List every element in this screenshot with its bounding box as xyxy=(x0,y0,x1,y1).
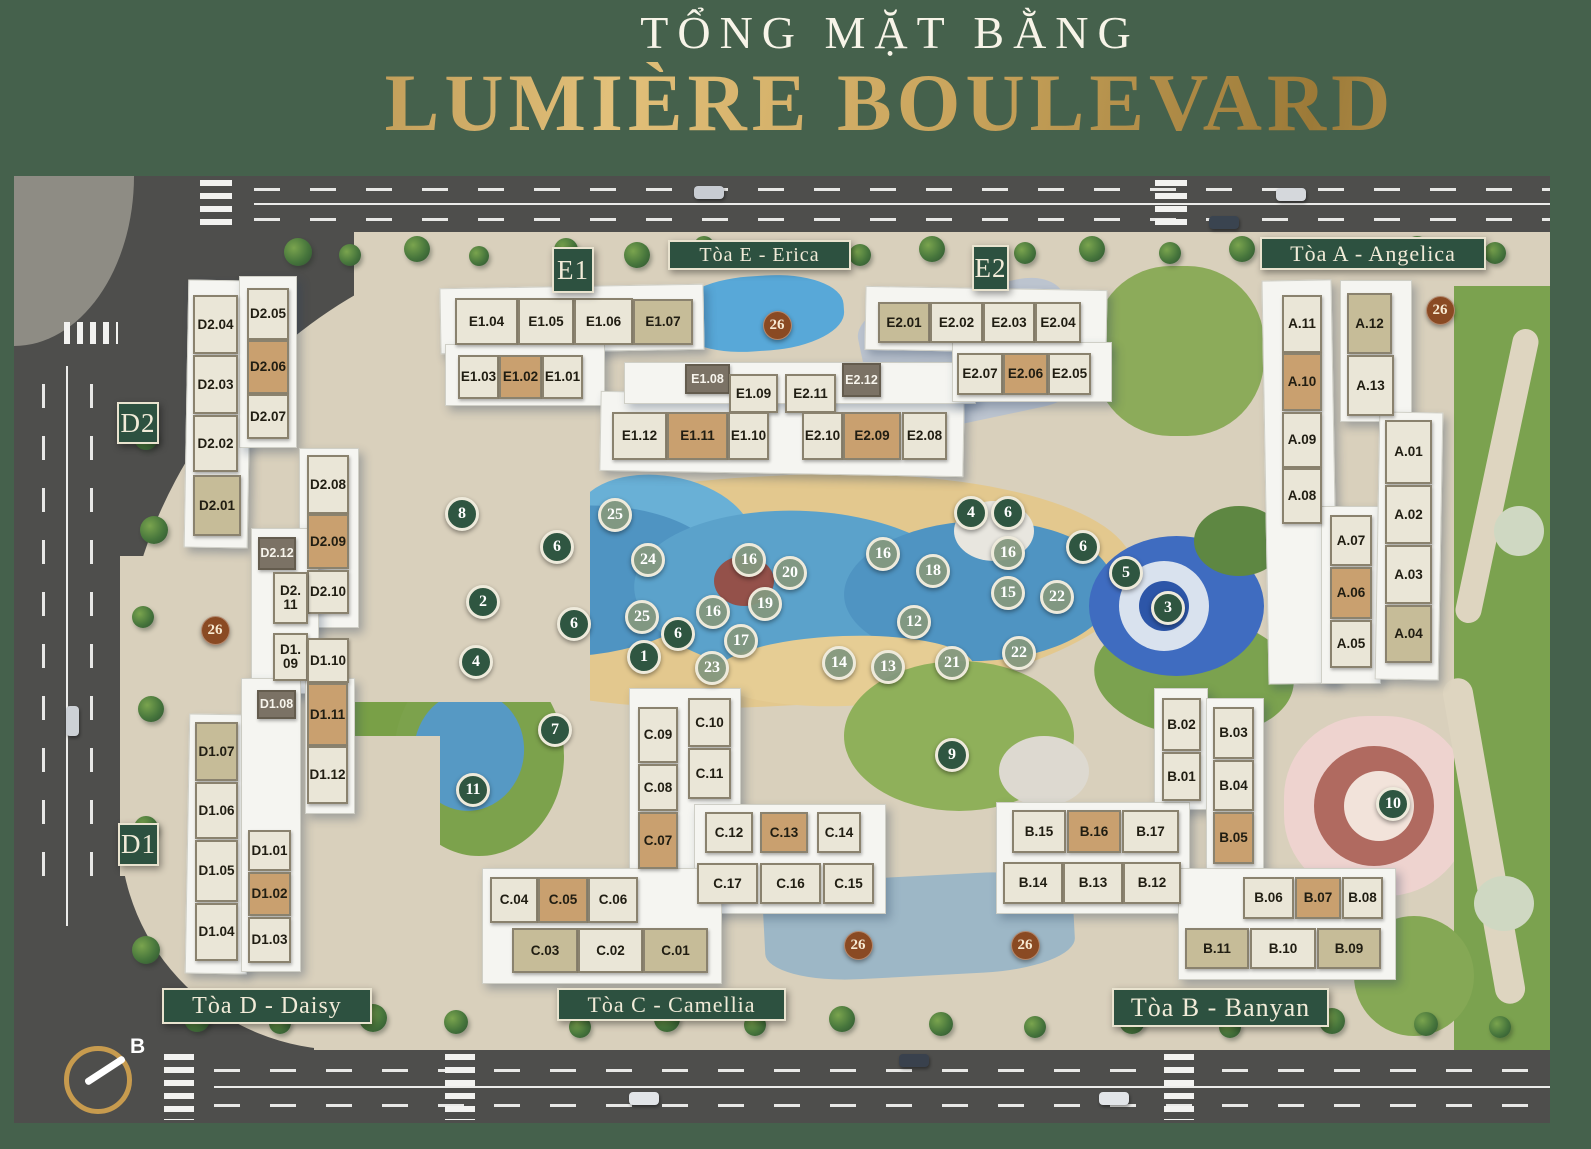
amenity-marker-25: 25 xyxy=(598,498,632,532)
unit-e2-02: E2.02 xyxy=(930,302,983,343)
unit-b-16: B.16 xyxy=(1067,810,1121,853)
palm-tree-icon xyxy=(624,242,650,268)
unit-e2-01: E2.01 xyxy=(878,302,930,343)
page-subtitle: TỔNG MẶT BẰNG xyxy=(190,4,1590,62)
unit-d1-05: D1.05 xyxy=(195,840,238,902)
unit-b-05: B.05 xyxy=(1213,812,1254,864)
amenity-marker-1: 1 xyxy=(627,640,661,674)
unit-e2-03: E2.03 xyxy=(983,302,1035,343)
palm-tree-icon xyxy=(1159,242,1181,264)
lane-marking xyxy=(254,218,1550,221)
amenity-marker-3: 3 xyxy=(1151,591,1185,625)
unit-e1-04: E1.04 xyxy=(455,298,518,345)
unit-c-07: C.07 xyxy=(638,812,678,869)
car-icon xyxy=(1099,1092,1129,1105)
unit-a-13: A.13 xyxy=(1347,355,1394,416)
unit-d2-07: D2.07 xyxy=(247,394,289,439)
unit-b-04: B.04 xyxy=(1213,760,1254,811)
page: { "title":{"subtitle":"TỔNG MẶT BẰNG","m… xyxy=(0,0,1591,1149)
unit-c-14: C.14 xyxy=(817,812,861,853)
lane-marking xyxy=(254,188,1550,191)
banner-toa-b: Tòa B - Banyan xyxy=(1112,988,1329,1027)
unit-e2-12: E2.12 xyxy=(842,363,881,397)
unit-d2-08: D2.08 xyxy=(307,455,349,514)
lane-marking xyxy=(214,1069,1550,1072)
amenity-marker-6: 6 xyxy=(1066,530,1100,564)
lane-marking xyxy=(66,366,68,926)
unit-e2-09: E2.09 xyxy=(843,412,901,460)
palm-tree-icon xyxy=(444,1010,468,1034)
unit-e1-05: E1.05 xyxy=(518,298,574,345)
palm-tree-icon xyxy=(339,244,361,266)
palm-tree-icon xyxy=(132,606,154,628)
unit-b-14: B.14 xyxy=(1003,862,1063,904)
unit-e1-12: E1.12 xyxy=(612,412,667,460)
unit-c-06: C.06 xyxy=(588,877,638,923)
unit-d2-04: D2.04 xyxy=(193,295,238,354)
unit-c-17: C.17 xyxy=(697,863,758,904)
palm-tree-icon xyxy=(929,1012,953,1036)
amenity-marker-10: 10 xyxy=(1376,787,1410,821)
unit-d1-10: D1.10 xyxy=(307,638,349,683)
unit-c-09: C.09 xyxy=(638,707,678,763)
car-icon xyxy=(1276,188,1306,201)
amenity-marker-21: 21 xyxy=(935,646,969,680)
block-label-d1: D1 xyxy=(118,823,159,866)
landscape-blob xyxy=(1474,876,1534,931)
unit-e2-11: E2.11 xyxy=(785,374,836,413)
amenity-marker-26: 26 xyxy=(201,616,230,645)
amenity-marker-25: 25 xyxy=(625,600,659,634)
unit-e2-07: E2.07 xyxy=(957,353,1003,395)
unit-e1-07: E1.07 xyxy=(633,299,693,345)
unit-d1-03: D1.03 xyxy=(248,917,291,963)
car-icon xyxy=(1209,216,1239,229)
lane-marking xyxy=(214,1104,1550,1107)
crosswalk xyxy=(1164,1054,1194,1120)
unit-d1-11: D1.11 xyxy=(307,683,348,746)
crosswalk xyxy=(64,322,118,344)
unit-d1-02: D1.02 xyxy=(248,872,291,916)
unit-b-08: B.08 xyxy=(1342,877,1383,919)
unit-a-03: A.03 xyxy=(1385,545,1432,604)
palm-tree-icon xyxy=(404,236,430,262)
unit-d1-01: D1.01 xyxy=(248,830,291,871)
car-icon xyxy=(899,1054,929,1067)
car-icon xyxy=(66,706,79,736)
banner-toa-d: Tòa D - Daisy xyxy=(162,988,372,1024)
lane-marking xyxy=(214,1086,1550,1088)
unit-e1-11: E1.11 xyxy=(667,412,728,460)
amenity-marker-16: 16 xyxy=(866,537,900,571)
amenity-marker-6: 6 xyxy=(557,607,591,641)
header: TỔNG MẶT BẰNG LUMIÈRE BOULEVARD xyxy=(190,4,1590,144)
palm-tree-icon xyxy=(132,936,160,964)
unit-e2-04: E2.04 xyxy=(1035,302,1081,343)
amenity-marker-8: 8 xyxy=(445,497,479,531)
compass-label: B xyxy=(130,1035,145,1059)
unit-c-08: C.08 xyxy=(638,764,678,811)
unit-c-15: C.15 xyxy=(823,863,874,904)
unit-d2-10: D2.10 xyxy=(307,570,349,614)
unit-b-12: B.12 xyxy=(1123,862,1181,904)
unit-b-01: B.01 xyxy=(1162,752,1201,801)
unit-a-06: A.06 xyxy=(1330,567,1372,619)
palm-tree-icon xyxy=(849,244,871,266)
palm-tree-icon xyxy=(919,236,945,262)
unit-a-01: A.01 xyxy=(1385,420,1432,484)
amenity-marker-16: 16 xyxy=(732,543,766,577)
unit-a-04: A.04 xyxy=(1385,605,1432,663)
amenity-marker-20: 20 xyxy=(773,556,807,590)
amenity-marker-22: 22 xyxy=(1002,636,1036,670)
unit-d1-04: D1.04 xyxy=(195,903,238,961)
unit-e2-10: E2.10 xyxy=(802,412,843,460)
unit-c-12: C.12 xyxy=(705,812,753,853)
unit-d2-12: D2.12 xyxy=(258,537,296,570)
unit-e2-05: E2.05 xyxy=(1048,353,1091,395)
palm-tree-icon xyxy=(140,516,168,544)
unit-d2-11: D2.11 xyxy=(273,572,308,624)
amenity-marker-18: 18 xyxy=(916,554,950,588)
unit-b-11: B.11 xyxy=(1185,928,1249,969)
unit-d1-08: D1.08 xyxy=(257,690,296,719)
lane-marking xyxy=(90,366,93,876)
palm-tree-icon xyxy=(1414,1012,1438,1036)
unit-a-10: A.10 xyxy=(1282,353,1322,411)
crosswalk xyxy=(445,1054,475,1120)
amenity-marker-14: 14 xyxy=(822,646,856,680)
unit-d2-03: D2.03 xyxy=(193,355,238,414)
unit-c-16: C.16 xyxy=(760,863,821,904)
amenity-marker-12: 12 xyxy=(897,605,931,639)
unit-d1-07: D1.07 xyxy=(195,722,238,781)
car-icon xyxy=(694,186,724,199)
palm-tree-icon xyxy=(1079,236,1105,262)
unit-c-13: C.13 xyxy=(760,812,808,853)
unit-c-04: C.04 xyxy=(490,877,538,923)
unit-b-09: B.09 xyxy=(1317,928,1381,969)
unit-a-09: A.09 xyxy=(1282,412,1322,468)
amenity-marker-4: 4 xyxy=(954,496,988,530)
unit-a-12: A.12 xyxy=(1347,293,1392,354)
unit-a-11: A.11 xyxy=(1282,295,1322,353)
unit-c-05: C.05 xyxy=(538,877,588,923)
amenity-marker-7: 7 xyxy=(538,713,572,747)
amenity-marker-24: 24 xyxy=(631,543,665,577)
unit-d2-09: D2.09 xyxy=(307,514,349,569)
lane-marking xyxy=(42,366,45,876)
block-label-d2: D2 xyxy=(117,402,159,444)
unit-a-02: A.02 xyxy=(1385,485,1432,544)
unit-e1-08: E1.08 xyxy=(685,364,730,394)
amenity-marker-11: 11 xyxy=(456,773,490,807)
unit-b-10: B.10 xyxy=(1250,928,1316,969)
unit-d2-01: D2.01 xyxy=(193,475,241,536)
unit-a-05: A.05 xyxy=(1330,620,1372,668)
palm-tree-icon xyxy=(138,696,164,722)
amenity-marker-26: 26 xyxy=(1011,931,1040,960)
unit-d2-05: D2.05 xyxy=(247,288,289,340)
unit-b-02: B.02 xyxy=(1162,698,1201,751)
page-title: LUMIÈRE BOULEVARD xyxy=(190,62,1590,144)
amenity-marker-26: 26 xyxy=(763,311,792,340)
palm-tree-icon xyxy=(829,1006,855,1032)
palm-tree-icon xyxy=(1014,242,1036,264)
palm-tree-icon xyxy=(1229,236,1255,262)
unit-a-08: A.08 xyxy=(1282,468,1322,524)
palm-tree-icon xyxy=(1024,1016,1046,1038)
amenity-marker-22: 22 xyxy=(1040,580,1074,614)
landscape-blob xyxy=(999,736,1089,806)
amenity-marker-15: 15 xyxy=(991,576,1025,610)
block-label-e2: E2 xyxy=(972,245,1009,291)
unit-e2-06: E2.06 xyxy=(1003,353,1048,395)
amenity-marker-17: 17 xyxy=(724,624,758,658)
palm-tree-icon xyxy=(1484,242,1506,264)
unit-d2-02: D2.02 xyxy=(193,415,238,472)
amenity-marker-16: 16 xyxy=(991,536,1025,570)
banner-toa-c: Tòa C - Camellia xyxy=(557,988,786,1021)
unit-b-03: B.03 xyxy=(1213,707,1254,759)
banner-toa-a: Tòa A - Angelica xyxy=(1260,237,1486,270)
lane-marking xyxy=(254,203,1550,205)
unit-e1-09: E1.09 xyxy=(729,374,778,413)
car-icon xyxy=(629,1092,659,1105)
banner-toa-e: Tòa E - Erica xyxy=(668,240,851,270)
palm-tree-icon xyxy=(284,238,312,266)
unit-d2-06: D2.06 xyxy=(247,340,289,394)
unit-b-07: B.07 xyxy=(1295,877,1341,919)
landscape-blob xyxy=(1494,506,1544,556)
unit-e1-02: E1.02 xyxy=(499,355,542,399)
unit-d1-12: D1.12 xyxy=(307,746,348,804)
unit-e1-10: E1.10 xyxy=(728,412,769,460)
unit-c-02: C.02 xyxy=(578,928,643,973)
crosswalk xyxy=(164,1054,194,1120)
unit-a-07: A.07 xyxy=(1330,515,1372,566)
unit-e2-08: E2.08 xyxy=(902,412,947,460)
unit-b-13: B.13 xyxy=(1063,862,1123,904)
palm-tree-icon xyxy=(1489,1016,1511,1038)
unit-b-17: B.17 xyxy=(1122,810,1179,853)
amenity-marker-19: 19 xyxy=(748,587,782,621)
block-label-e1: E1 xyxy=(552,247,594,293)
amenity-marker-5: 5 xyxy=(1109,556,1143,590)
unit-c-03: C.03 xyxy=(512,928,578,973)
unit-e1-03: E1.03 xyxy=(458,355,499,399)
unit-b-15: B.15 xyxy=(1012,810,1066,853)
amenity-marker-9: 9 xyxy=(935,738,969,772)
unit-c-01: C.01 xyxy=(643,928,708,973)
amenity-marker-26: 26 xyxy=(1426,296,1455,325)
amenity-marker-16: 16 xyxy=(696,595,730,629)
crosswalk xyxy=(200,180,232,228)
crosswalk xyxy=(1155,180,1187,228)
unit-c-10: C.10 xyxy=(688,698,731,747)
unit-b-06: B.06 xyxy=(1243,877,1294,919)
landscape-blob xyxy=(1094,266,1264,436)
unit-e1-01: E1.01 xyxy=(542,355,583,399)
unit-d1-06: D1.06 xyxy=(195,782,238,839)
amenity-marker-2: 2 xyxy=(466,585,500,619)
unit-e1-06: E1.06 xyxy=(574,298,633,345)
palm-tree-icon xyxy=(469,246,489,266)
amenity-marker-6: 6 xyxy=(661,617,695,651)
amenity-marker-6: 6 xyxy=(991,496,1025,530)
site-plan-map: B E1.04E1.05E1.06E1.07E1.03E1.02E1.01E1.… xyxy=(14,176,1550,1123)
amenity-marker-26: 26 xyxy=(844,931,873,960)
amenity-marker-23: 23 xyxy=(695,651,729,685)
amenity-marker-4: 4 xyxy=(459,645,493,679)
unit-c-11: C.11 xyxy=(688,748,731,799)
amenity-marker-6: 6 xyxy=(540,530,574,564)
unit-d1-09: D1.09 xyxy=(273,633,308,681)
amenity-marker-13: 13 xyxy=(871,650,905,684)
